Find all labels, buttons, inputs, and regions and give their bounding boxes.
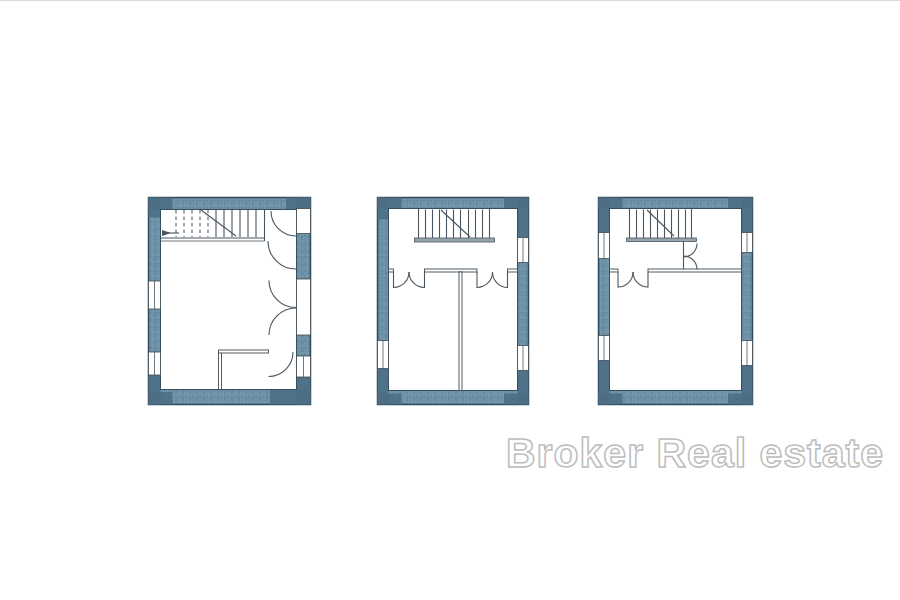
door-opening [297,209,311,234]
floor-plan-image: Broker Real estate [0,0,900,600]
floor-plan-left [149,198,311,405]
watermark: Broker Real estate [506,430,884,477]
door-opening [297,279,311,335]
floor-plans-canvas [0,0,900,600]
stair-landing-bar [415,238,495,242]
floor-plan-right [599,198,753,405]
floor-plan-middle [378,198,529,405]
stair-landing-bar [627,238,697,242]
